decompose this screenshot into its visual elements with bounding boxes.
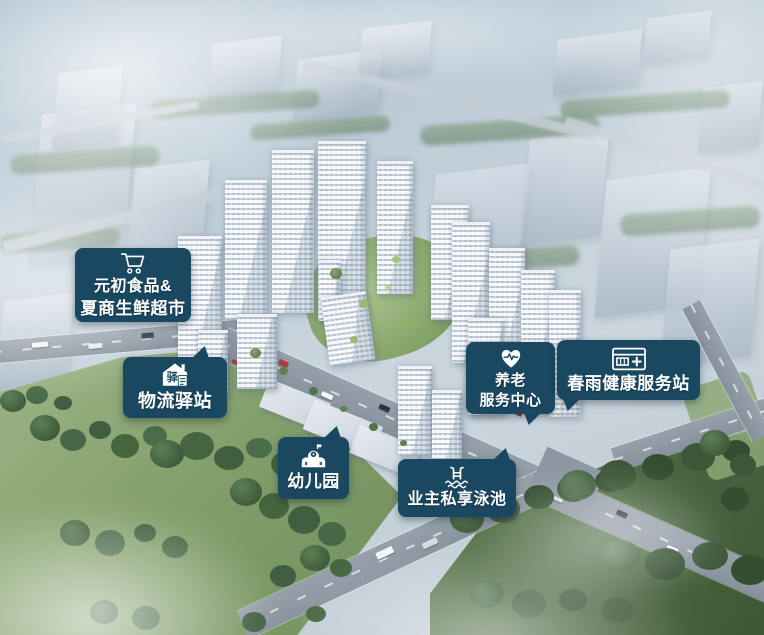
- callout-label: 服务中心: [479, 391, 541, 410]
- callout-label: 业主私享泳池: [407, 490, 506, 510]
- callout-elderly-care: 养老 服务中心: [466, 342, 555, 414]
- aerial-render: 元初食品& 夏商生鲜超市 驿 物流驿站 幼儿园: [0, 0, 764, 635]
- callout-label: 元初食品&: [94, 277, 172, 297]
- shopping-cart-icon: [117, 250, 149, 276]
- tree-cluster: [700, 430, 730, 456]
- icon-character: 驿: [167, 372, 179, 385]
- tree-cluster: [150, 440, 184, 468]
- street-trees: [250, 348, 261, 358]
- residential-tower: [377, 161, 413, 294]
- callout-kindergarten: 幼儿园: [278, 437, 349, 499]
- car: [278, 359, 289, 368]
- pool-ladder-icon: [441, 465, 473, 489]
- callout-label: 幼儿园: [287, 471, 340, 493]
- callout-owners-pool: 业主私享泳池: [398, 459, 516, 517]
- callout-label: 夏商生鲜超市: [81, 298, 186, 320]
- tree-cluster: [30, 415, 60, 441]
- courier-house-icon: 驿: [160, 361, 190, 389]
- callout-logistics-station: 驿 物流驿站: [123, 357, 227, 418]
- car: [378, 404, 390, 413]
- clinic-kiosk-icon: [610, 346, 648, 372]
- callout-label: 物流驿站: [138, 390, 212, 413]
- residential-midrise: [320, 291, 375, 366]
- residential-midrise: [398, 366, 432, 455]
- callout-label: 养老: [495, 371, 526, 390]
- callout-health-station: 春雨健康服务站: [557, 340, 700, 400]
- heart-pulse-icon: [498, 346, 524, 370]
- callout-label: 春雨健康服务站: [567, 373, 690, 395]
- garden-trees: [330, 268, 342, 279]
- residential-midrise: [432, 390, 462, 465]
- school-building-icon: [299, 443, 328, 470]
- fog-patch: [0, 500, 280, 635]
- callout-supermarket: 元初食品& 夏商生鲜超市: [75, 248, 191, 322]
- fog-patch: [560, 0, 764, 140]
